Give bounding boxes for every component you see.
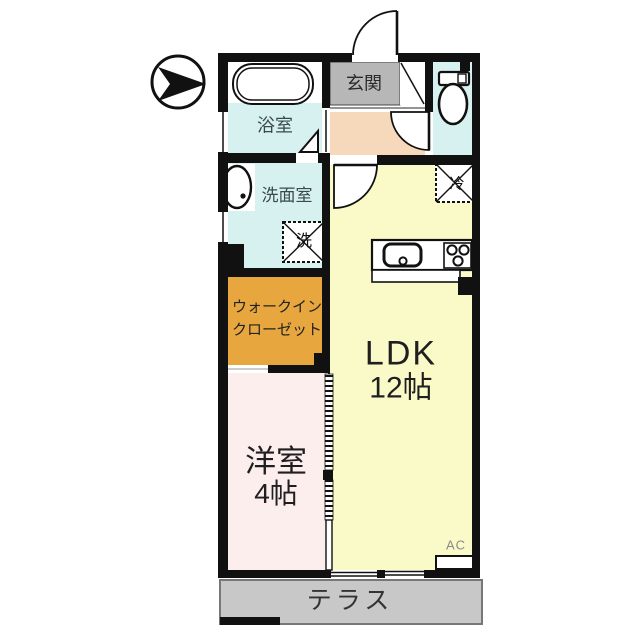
stove-icon (444, 243, 471, 268)
bathroom-label: 浴室 (257, 116, 293, 137)
window-left-bath (218, 112, 228, 152)
western-room-label: 洋室 4帖 (245, 446, 307, 508)
ldk-size: 12帖 (365, 372, 437, 404)
ldk-name: LDK (365, 336, 437, 372)
toilet-icon (439, 72, 469, 124)
washroom-doorway (322, 108, 330, 153)
ac-pad (436, 556, 477, 569)
washroom-label: 洗面室 (262, 186, 313, 206)
terrace-label: テラス (307, 587, 394, 616)
terrace-window-1 (331, 570, 377, 578)
bathtub-icon (233, 64, 313, 104)
washer-box-label: 洗 (296, 233, 312, 251)
walk-in-closet-line2: クローゼット (232, 319, 322, 342)
ac-label: AC (446, 539, 466, 554)
western-room-name: 洋室 (245, 446, 307, 479)
kitchen-sink-icon (384, 244, 421, 266)
window-left-washroom (218, 212, 228, 242)
western-room-size: 4帖 (245, 479, 307, 508)
refrigerator-box-label: 冷 (449, 175, 464, 192)
entrance-door-swing (353, 11, 397, 55)
north-arrow-icon (152, 56, 206, 108)
terrace-window-2 (385, 570, 424, 578)
closet-opening (228, 365, 268, 373)
walk-in-closet-label: ウォークイン クローゼット (232, 297, 322, 342)
entrance-doorway (352, 53, 398, 62)
floor-plan: 玄関 浴室 洗面室 洗 冷 ウォークイン クローゼット LDK 12帖 洋室 4… (0, 0, 640, 640)
walk-in-closet-line1: ウォークイン (232, 297, 322, 320)
entrance-label: 玄関 (346, 74, 382, 95)
ldk-label: LDK 12帖 (365, 336, 437, 403)
